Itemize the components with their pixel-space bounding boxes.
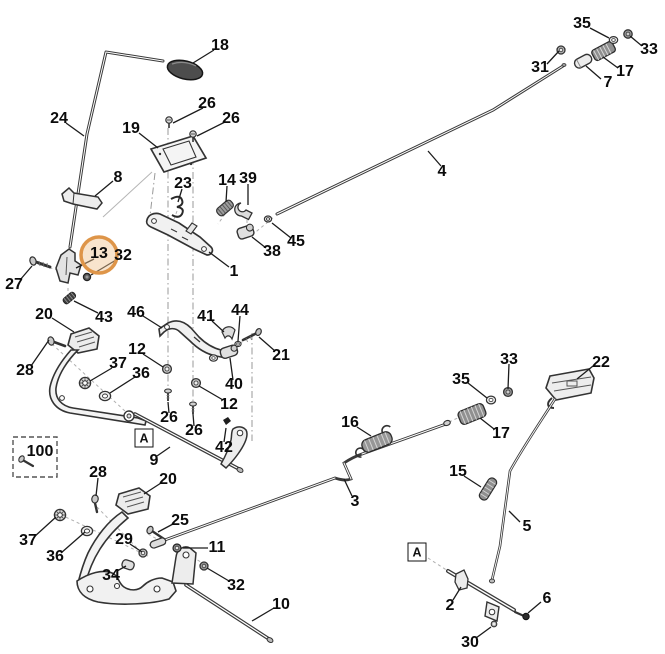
part-label-33-10[interactable]: 33 <box>640 42 658 58</box>
part-label-3-49[interactable]: 3 <box>351 494 360 510</box>
part-label-26-3[interactable]: 26 <box>222 111 240 127</box>
part-label-10-47[interactable]: 10 <box>272 597 290 613</box>
part-label-2-56[interactable]: 2 <box>446 598 455 614</box>
part-label-9-36[interactable]: 9 <box>150 453 159 469</box>
part-label-26-34[interactable]: 26 <box>185 423 203 439</box>
part-label-12-32[interactable]: 12 <box>220 397 238 413</box>
part-label-12-28[interactable]: 12 <box>128 342 146 358</box>
part-label-31-11[interactable]: 31 <box>531 60 549 76</box>
part-label-20-39[interactable]: 20 <box>159 472 177 488</box>
part-label-6-57[interactable]: 6 <box>543 591 552 607</box>
part-label-44-25[interactable]: 44 <box>231 303 249 319</box>
part-label-25-40[interactable]: 25 <box>171 513 189 529</box>
part-label-35-9[interactable]: 35 <box>573 16 591 32</box>
part-label-26-33[interactable]: 26 <box>160 410 178 426</box>
part-label-36-30[interactable]: 36 <box>132 366 150 382</box>
part-label-21-26[interactable]: 21 <box>272 348 290 364</box>
part-label-29-41[interactable]: 29 <box>115 532 133 548</box>
part-label-11-42[interactable]: 11 <box>209 540 226 556</box>
part-label-22-53[interactable]: 22 <box>592 355 610 371</box>
part-label-30-58[interactable]: 30 <box>461 635 479 651</box>
part-label-19-4[interactable]: 19 <box>122 121 140 137</box>
part-label-13-15[interactable]: 13 <box>90 246 108 262</box>
ref-marker-a-2: A <box>408 543 427 562</box>
part-label-39-8[interactable]: 39 <box>239 171 257 187</box>
part-label-42-35[interactable]: 42 <box>215 440 233 456</box>
part-label-40-31[interactable]: 40 <box>225 377 243 393</box>
part-label-28-27[interactable]: 28 <box>16 363 34 379</box>
part-label-4-14[interactable]: 4 <box>438 164 447 180</box>
part-label-1-18[interactable]: 1 <box>230 264 239 280</box>
part-label-16-48[interactable]: 16 <box>341 415 359 431</box>
label-layer: 1824262619823143935333117741332271384543… <box>0 0 665 654</box>
part-label-5-55[interactable]: 5 <box>523 519 532 535</box>
part-label-18-0[interactable]: 18 <box>211 38 229 54</box>
part-label-34-45[interactable]: 34 <box>102 568 120 584</box>
part-label-45-20[interactable]: 45 <box>287 234 305 250</box>
part-label-35-51[interactable]: 35 <box>452 372 470 388</box>
parts-diagram: 1824262619823143935333117741332271384543… <box>0 0 665 654</box>
part-label-15-54[interactable]: 15 <box>449 464 467 480</box>
part-label-20-22[interactable]: 20 <box>35 307 53 323</box>
part-label-26-2[interactable]: 26 <box>198 96 216 112</box>
part-label-17-12[interactable]: 17 <box>616 64 634 80</box>
part-label-38-19[interactable]: 38 <box>263 244 281 260</box>
part-label-32-46[interactable]: 32 <box>227 578 245 594</box>
ref-marker-a-1: A <box>135 429 154 448</box>
part-label-27-17[interactable]: 27 <box>5 277 23 293</box>
part-label-37-43[interactable]: 37 <box>19 533 37 549</box>
part-label-23-6[interactable]: 23 <box>174 176 192 192</box>
part-label-43-21[interactable]: 43 <box>95 310 113 326</box>
part-label-7-13[interactable]: 7 <box>604 75 613 91</box>
part-label-28-38[interactable]: 28 <box>89 465 107 481</box>
part-label-46-23[interactable]: 46 <box>127 305 145 321</box>
part-label-36-44[interactable]: 36 <box>46 549 64 565</box>
part-label-8-5[interactable]: 8 <box>114 170 123 186</box>
part-label-24-1[interactable]: 24 <box>50 111 68 127</box>
part-label-14-7[interactable]: 14 <box>218 173 236 189</box>
part-label-37-29[interactable]: 37 <box>109 356 127 372</box>
part-label-32-16[interactable]: 32 <box>114 248 132 264</box>
part-label-33-50[interactable]: 33 <box>500 352 518 368</box>
part-label-41-24[interactable]: 41 <box>197 309 215 325</box>
part-label-17-52[interactable]: 17 <box>492 426 510 442</box>
part-label-100-37[interactable]: 100 <box>27 444 54 460</box>
